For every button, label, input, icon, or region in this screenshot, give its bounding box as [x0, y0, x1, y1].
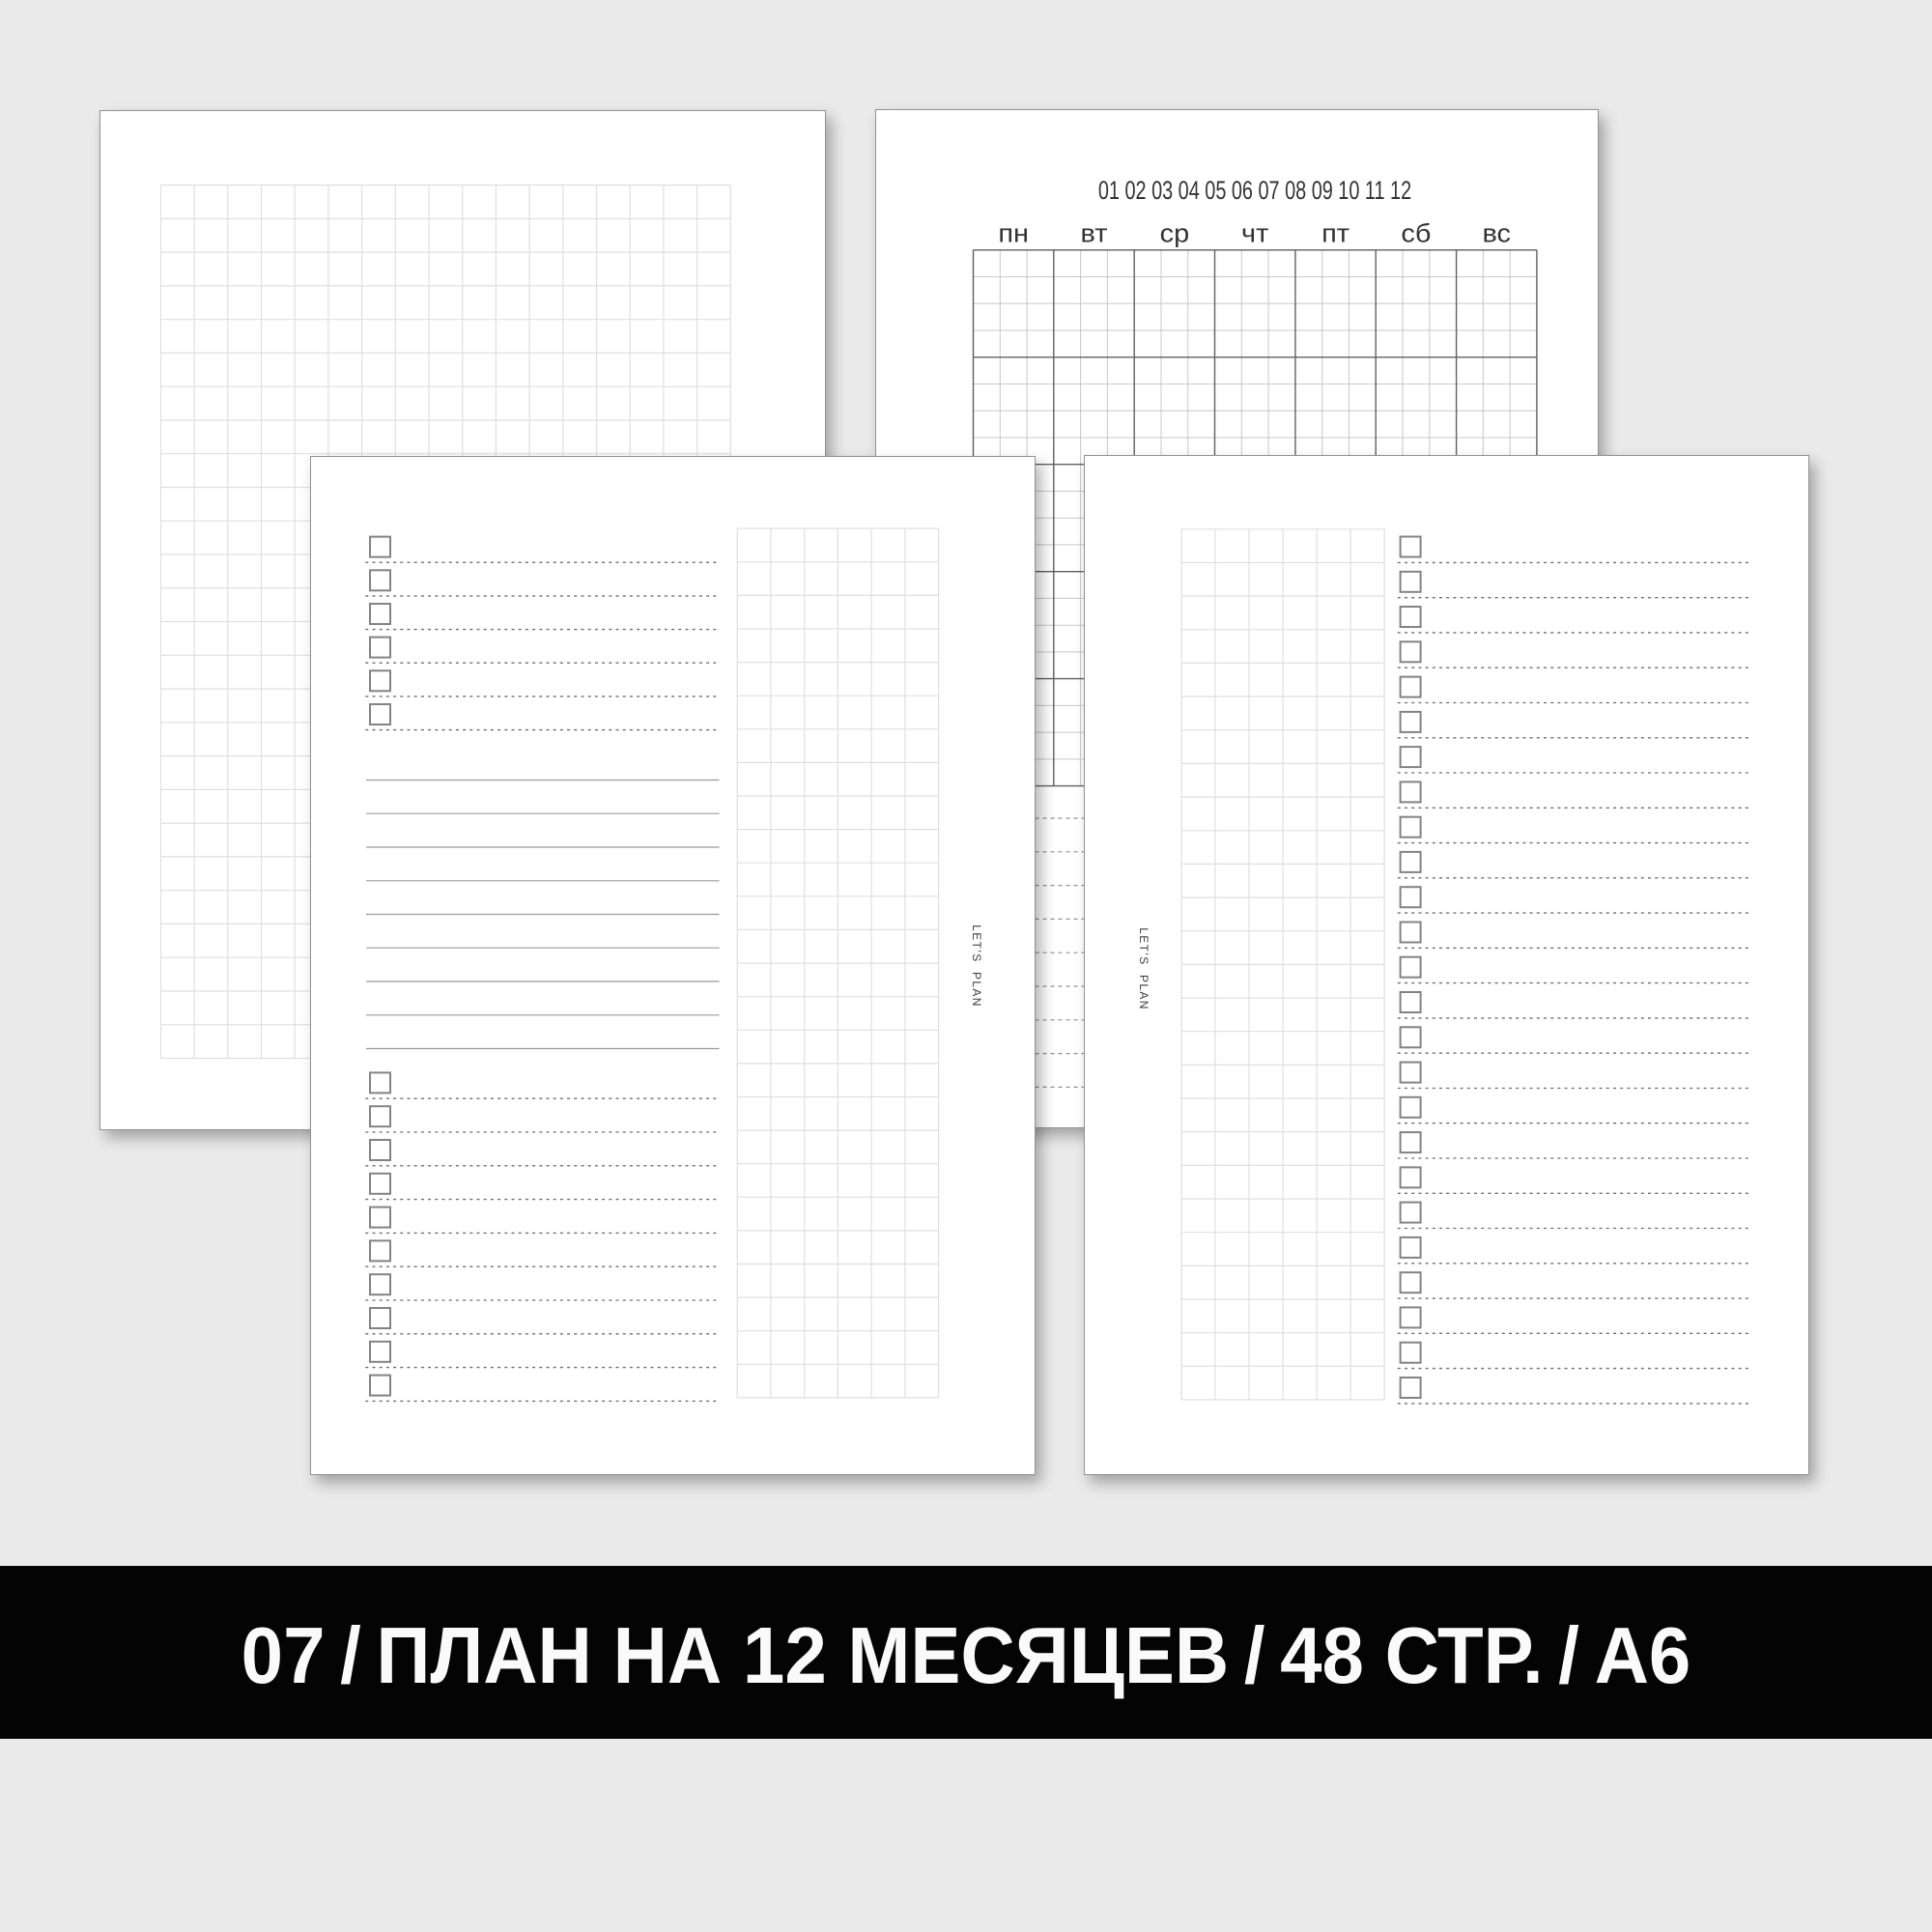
svg-text:вс: вс: [1482, 218, 1510, 247]
svg-text:пт: пт: [1321, 218, 1350, 247]
svg-text:01 02 03 04 05 06 07 08 09 10: 01 02 03 04 05 06 07 08 09 10 11 12: [1098, 177, 1411, 206]
svg-text:пн: пн: [998, 218, 1029, 247]
svg-text:ср: ср: [1160, 218, 1190, 247]
svg-text:сб: сб: [1401, 218, 1431, 247]
svg-text:вт: вт: [1081, 218, 1108, 247]
svg-text:чт: чт: [1241, 218, 1268, 247]
